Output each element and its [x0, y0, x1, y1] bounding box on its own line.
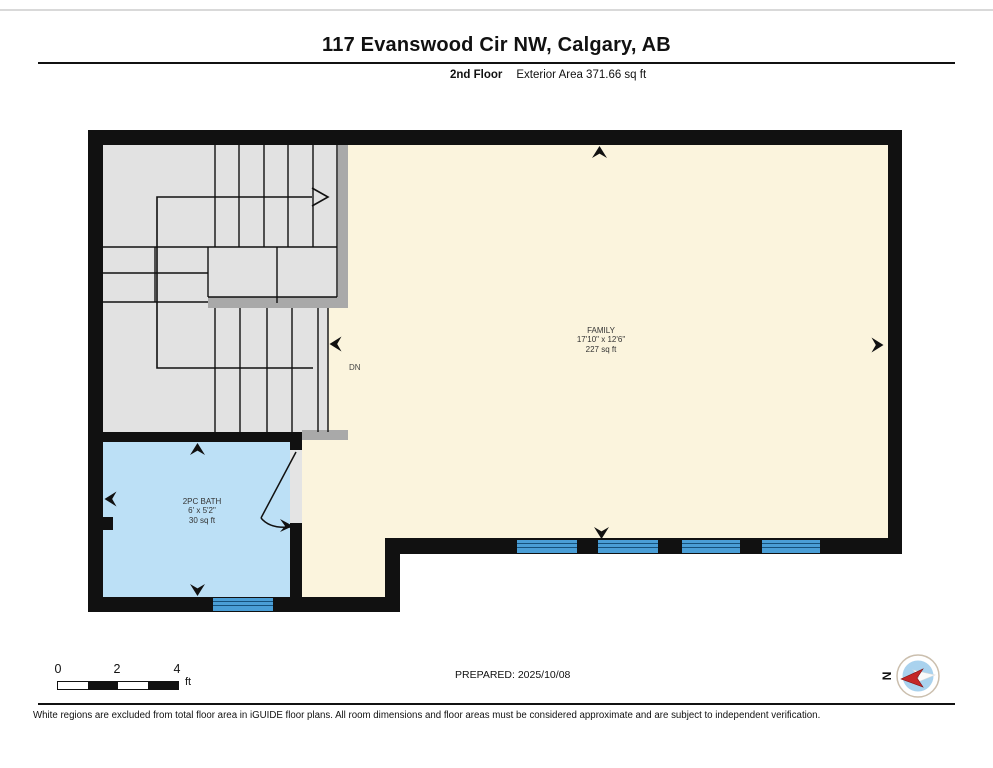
page-title: 117 Evanswood Cir NW, Calgary, AB: [0, 34, 993, 57]
compass-icon: [895, 653, 941, 699]
wall-pier-bath-left: [103, 517, 113, 530]
floor-name-label: 2nd Floor: [450, 69, 502, 81]
header-divider: [38, 62, 955, 64]
wall-left: [88, 130, 103, 612]
page-top-edge: [0, 9, 993, 11]
stairs-upper-floor: [103, 145, 338, 308]
room-name: 2PC BATH: [140, 497, 264, 506]
stairwell-railing-middle: [208, 297, 348, 308]
stairwell-railing-right: [338, 145, 348, 308]
exterior-area-label: Exterior Area 371.66 sq ft: [516, 69, 646, 81]
prepared-date-label: PREPARED: 2025/10/08: [455, 669, 570, 681]
wall-stairs-bath: [103, 432, 302, 442]
scale-bar: [57, 681, 179, 690]
stairs-lower-floor: [103, 308, 328, 432]
bath-room-label: 2PC BATH 6' x 5'2" 30 sq ft: [140, 497, 264, 525]
room-name: FAMILY: [539, 326, 663, 335]
stairwell-railing-lower: [302, 430, 348, 440]
bath-door-opening: [290, 450, 302, 523]
stairs-dn-label: DN: [349, 363, 361, 372]
compass-north-label: N: [879, 672, 893, 681]
room-dimensions: 6' x 5'2": [140, 506, 264, 515]
wall-right: [888, 130, 902, 554]
family-room-label: FAMILY 17'10" x 12'6" 227 sq ft: [539, 326, 663, 354]
disclaimer-text: White regions are excluded from total fl…: [33, 710, 820, 721]
window-family-3: [682, 539, 740, 554]
scale-segment: [148, 682, 178, 689]
scale-tick-4: 4: [170, 662, 184, 676]
scale-segment: [88, 682, 118, 689]
room-area: 30 sq ft: [140, 516, 264, 525]
scale-segment: [118, 682, 148, 689]
scale-segment: [58, 682, 88, 689]
footer-divider: [38, 703, 955, 705]
floor-subheader: 2nd FloorExterior Area 371.66 sq ft: [450, 69, 646, 81]
scale-tick-0: 0: [51, 662, 65, 676]
window-bath: [213, 597, 273, 612]
scale-unit-label: ft: [185, 676, 191, 688]
window-family-1: [517, 539, 577, 554]
room-dimensions: 17'10" x 12'6": [539, 335, 663, 344]
room-area: 227 sq ft: [539, 345, 663, 354]
window-family-2: [598, 539, 658, 554]
wall-top: [88, 130, 902, 145]
window-family-4: [762, 539, 820, 554]
scale-tick-2: 2: [110, 662, 124, 676]
